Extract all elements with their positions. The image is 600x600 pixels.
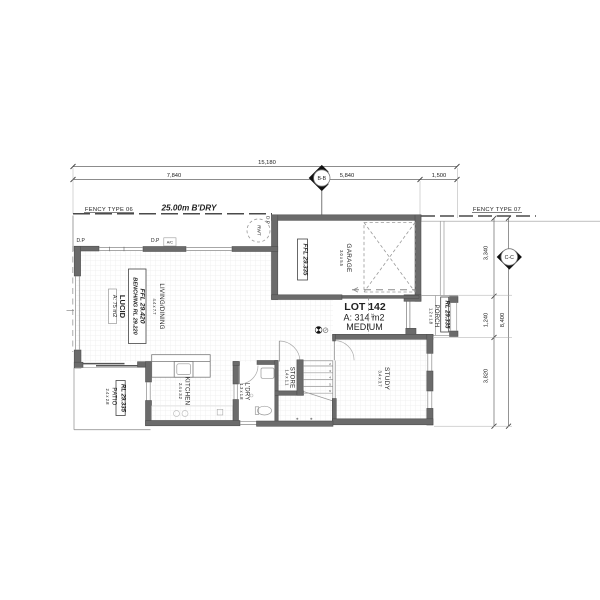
svg-text:8,400: 8,400: [500, 313, 506, 328]
svg-text:LOT 142: LOT 142: [344, 301, 386, 313]
svg-text:A: 75 m2: A: 75 m2: [111, 295, 117, 317]
svg-text:3.4 x 3.7: 3.4 x 3.7: [378, 370, 383, 387]
svg-text:1.2 x 1.8: 1.2 x 1.8: [428, 308, 433, 325]
svg-text:3.0 x 5.5: 3.0 x 5.5: [339, 250, 344, 267]
svg-text:2.4 x 2.8: 2.4 x 2.8: [105, 388, 110, 405]
svg-text:D.P: D.P: [151, 238, 160, 244]
svg-text:FFL 29.335: FFL 29.335: [301, 244, 308, 276]
svg-text:1,240: 1,240: [484, 313, 490, 328]
svg-text:25.00m B'DRY: 25.00m B'DRY: [160, 204, 218, 213]
svg-text:BENCHING RL 29.220: BENCHING RL 29.220: [132, 277, 138, 335]
svg-text:D.P: D.P: [265, 216, 271, 224]
svg-text:1.3 x 1.8: 1.3 x 1.8: [239, 383, 244, 400]
svg-text:LUCID: LUCID: [118, 295, 127, 319]
svg-text:1:2: 1:2: [370, 313, 374, 318]
svg-text:STUDY: STUDY: [383, 367, 390, 390]
svg-text:2.4 x 3.2: 2.4 x 3.2: [178, 383, 183, 400]
svg-text:FENCY TYPE 06: FENCY TYPE 06: [85, 207, 133, 213]
svg-text:A/C: A/C: [167, 241, 174, 245]
svg-text:1.4 x 1.1: 1.4 x 1.1: [284, 369, 289, 386]
svg-text:PATIO: PATIO: [111, 387, 117, 405]
svg-text:LIVING/DINING: LIVING/DINING: [158, 283, 165, 329]
svg-text:MEDIUM: MEDIUM: [346, 322, 383, 332]
svg-text:1,500: 1,500: [432, 173, 447, 179]
svg-text:15,180: 15,180: [258, 160, 276, 166]
svg-text:C-C: C-C: [505, 255, 514, 261]
svg-text:3,820: 3,820: [484, 369, 490, 384]
svg-text:FFL 29.420: FFL 29.420: [139, 288, 146, 323]
svg-text:4.4 x 7.7: 4.4 x 7.7: [152, 298, 157, 315]
svg-text:3,340: 3,340: [484, 246, 490, 261]
svg-text:RL 29.335: RL 29.335: [443, 301, 449, 330]
svg-text:D.P: D.P: [77, 238, 86, 244]
svg-text:GARAGE: GARAGE: [345, 243, 352, 272]
svg-text:5,840: 5,840: [340, 173, 355, 179]
svg-text:RWT: RWT: [257, 225, 262, 236]
svg-text:7,840: 7,840: [167, 173, 182, 179]
svg-text:FENCY TYPE 07: FENCY TYPE 07: [473, 207, 521, 213]
svg-text:A: 314 m2: A: 314 m2: [343, 312, 384, 322]
svg-text:KITCHEN: KITCHEN: [184, 377, 191, 406]
svg-text:B-B: B-B: [317, 176, 326, 182]
svg-text:RL 29.335: RL 29.335: [119, 384, 125, 413]
